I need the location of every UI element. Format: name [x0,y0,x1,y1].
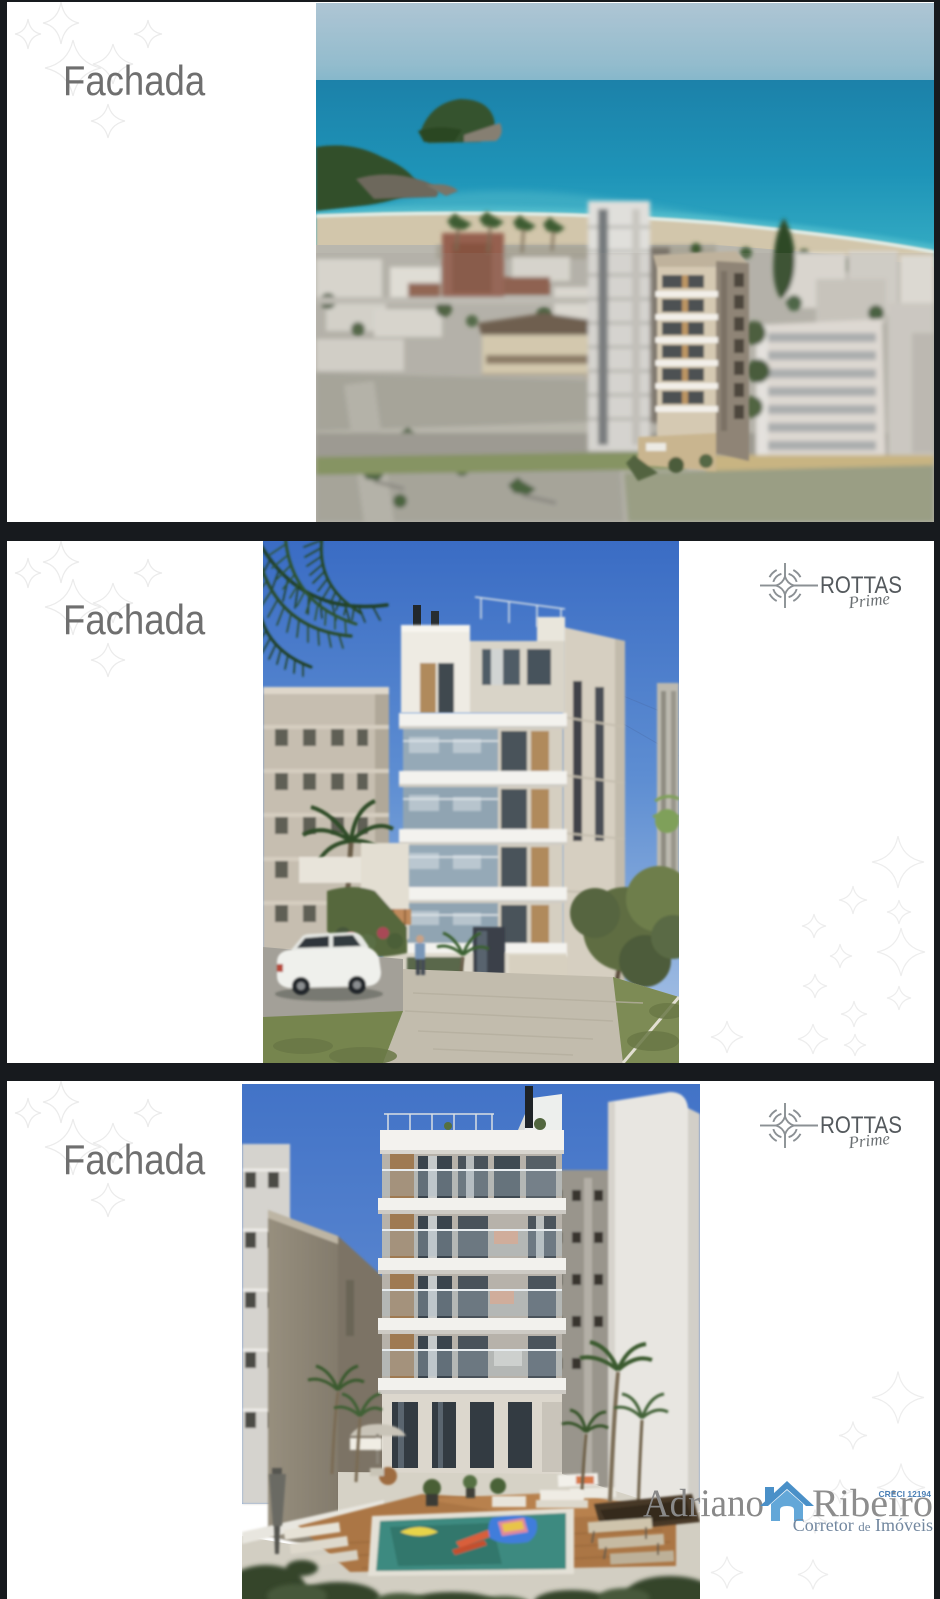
svg-text:Prime: Prime [847,1129,892,1152]
svg-text:CRECI 12194: CRECI 12194 [879,1489,932,1499]
svg-text:Adriano: Adriano [643,1482,764,1525]
svg-text:Prime: Prime [847,589,892,612]
